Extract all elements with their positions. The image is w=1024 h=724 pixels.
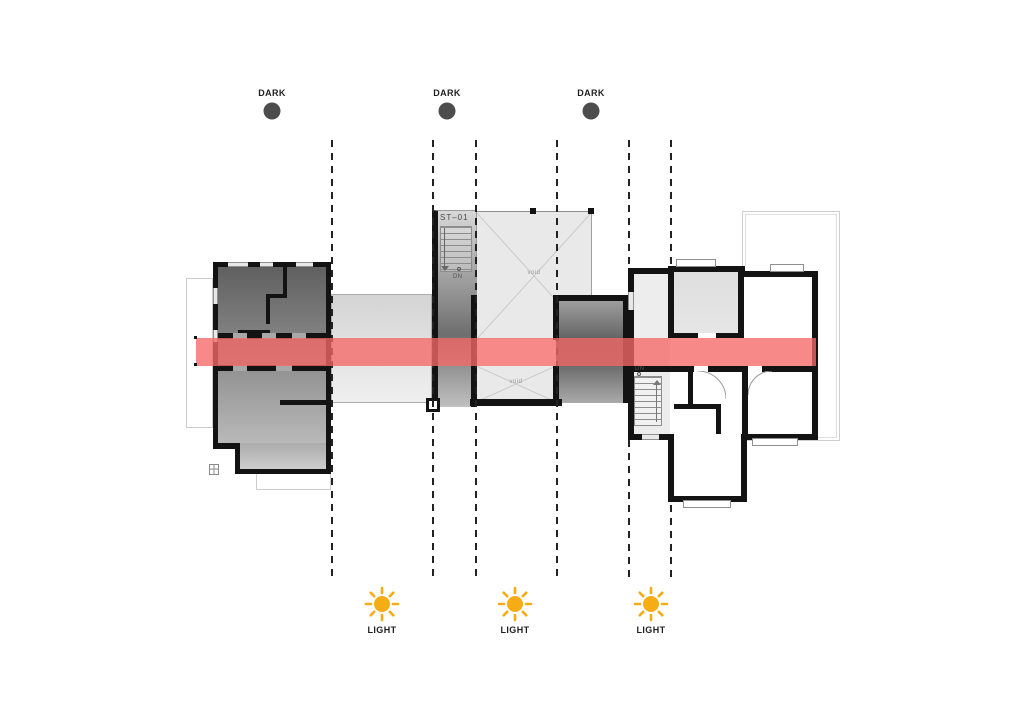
stair-node-icon xyxy=(457,267,461,271)
sun-icon xyxy=(633,586,669,622)
window xyxy=(228,262,248,267)
interior-wall xyxy=(688,372,693,408)
window-bay xyxy=(676,259,716,267)
sun-icon xyxy=(497,586,533,622)
stair-arrow-down-icon xyxy=(441,266,449,271)
window xyxy=(260,262,273,267)
dark-annotation-1: DARK xyxy=(242,88,302,121)
lower-room-east-wall xyxy=(741,434,747,502)
interior-wall xyxy=(738,271,744,338)
lower-room-west-wall xyxy=(668,434,674,502)
window-bay xyxy=(683,500,731,508)
door-swing-arc xyxy=(748,371,772,395)
light-annotation-2: LIGHT xyxy=(485,586,545,635)
section-line-5-upper xyxy=(628,140,630,268)
door-swing-arc xyxy=(698,371,726,399)
sun-icon xyxy=(364,586,400,622)
stair-dn-label: DN xyxy=(453,274,462,280)
window xyxy=(296,262,313,267)
void-label: void xyxy=(476,270,592,276)
stair-direction-line xyxy=(656,384,657,422)
light-label: LIGHT xyxy=(501,625,530,635)
dark-circle-icon xyxy=(437,101,457,121)
section-line-5-lower xyxy=(628,440,630,580)
window xyxy=(213,288,218,304)
band-tick xyxy=(194,363,197,366)
diagram-canvas: DARK DARK DARK xyxy=(0,0,1024,724)
interior-wall xyxy=(668,266,674,338)
interior-wall xyxy=(674,404,720,409)
west-wing-lower xyxy=(235,443,331,474)
stair-dn-label: DN xyxy=(635,366,644,372)
section-line-6-upper xyxy=(670,140,672,266)
dark-label: DARK xyxy=(433,88,461,98)
dark-label: DARK xyxy=(258,88,286,98)
plan-symbol-icon xyxy=(209,464,219,475)
light-label: LIGHT xyxy=(368,625,397,635)
window-bay xyxy=(770,264,804,272)
east-wing-lower-floor xyxy=(668,440,747,502)
void-lower-south-wall xyxy=(470,399,562,406)
column-marker xyxy=(588,208,594,214)
dark-annotation-3: DARK xyxy=(561,88,621,121)
window-bay xyxy=(752,438,798,446)
band-tick xyxy=(194,336,197,339)
void-label: void xyxy=(476,379,556,385)
interior-wall xyxy=(280,400,331,405)
dark-circle-icon xyxy=(581,101,601,121)
light-label: LIGHT xyxy=(637,625,666,635)
stair-arrow-up-icon xyxy=(653,380,661,385)
light-annotation-3: LIGHT xyxy=(621,586,681,635)
dark-label: DARK xyxy=(577,88,605,98)
stair-node-icon xyxy=(637,372,641,376)
west-lower-terrace-outline xyxy=(256,473,331,490)
void-lower: void xyxy=(476,366,556,402)
window xyxy=(642,434,659,440)
light-annotation-1: LIGHT xyxy=(352,586,412,635)
column-marker xyxy=(530,208,536,214)
interior-wall xyxy=(283,262,287,298)
section-band xyxy=(196,338,816,366)
dark-circle-icon xyxy=(262,101,282,121)
interior-wall xyxy=(266,294,270,324)
west-wing-step-wall xyxy=(213,443,240,449)
section-line-6-lower xyxy=(670,505,672,580)
dark-annotation-2: DARK xyxy=(417,88,477,121)
stair-core-label: ST–01 xyxy=(440,213,469,222)
stair-direction-line xyxy=(444,228,445,266)
window xyxy=(628,292,634,310)
room-above-band xyxy=(670,266,741,338)
interior-wall xyxy=(716,404,721,434)
